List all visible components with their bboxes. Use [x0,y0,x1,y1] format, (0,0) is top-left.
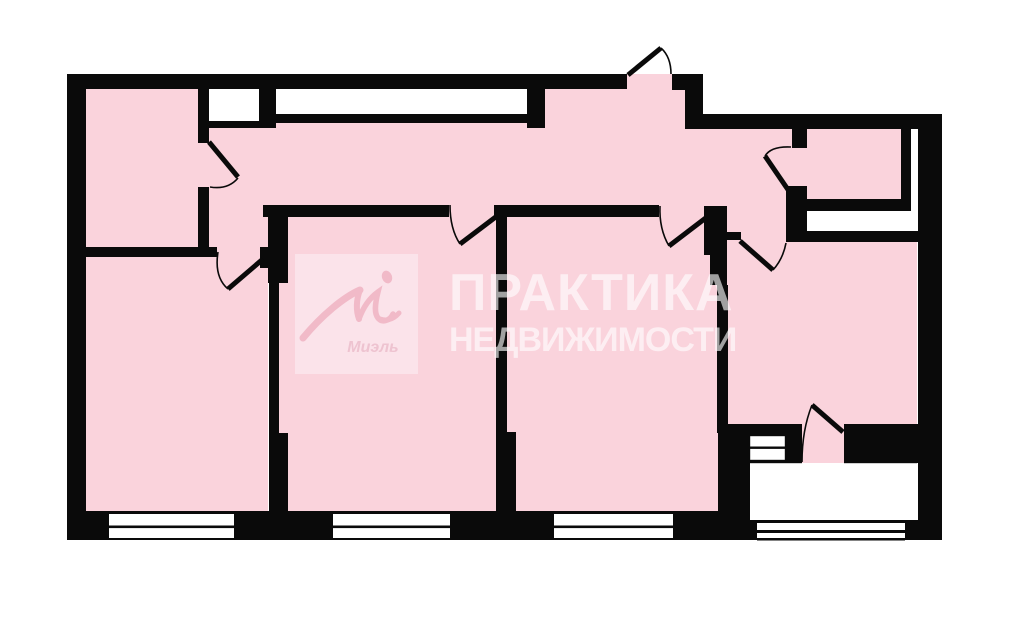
svg-text:ПРАКТИКА: ПРАКТИКА [449,264,734,322]
svg-text:НЕДВИЖИМОСТИ: НЕДВИЖИМОСТИ [449,321,736,359]
svg-text:Миэль: Миэль [347,339,398,356]
